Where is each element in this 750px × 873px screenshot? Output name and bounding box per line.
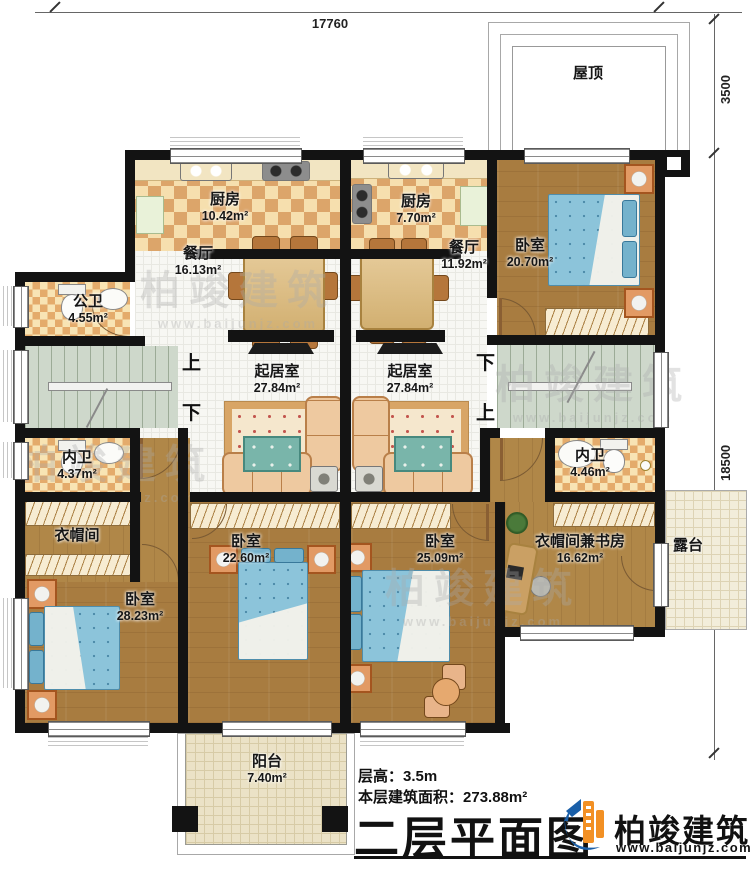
- nightstand: [624, 164, 654, 194]
- wall-tv: [228, 330, 334, 342]
- pillow: [622, 200, 637, 237]
- bed: [362, 570, 450, 662]
- stair-label-down: 下: [476, 348, 495, 375]
- nightstand: [27, 690, 57, 720]
- wall: [125, 150, 135, 282]
- window-sill: [3, 286, 13, 326]
- room-label-kitchen-left: 厨房10.42m²: [165, 192, 285, 223]
- window: [360, 721, 466, 737]
- balcony-door: [222, 721, 332, 737]
- window-sill: [3, 350, 13, 422]
- window: [13, 598, 29, 690]
- room-label-study: 衣帽间兼书房16.62m²: [500, 534, 660, 565]
- room-label-bedroom-s1: 卧室22.60m²: [194, 534, 298, 565]
- window-sill: [3, 442, 13, 478]
- room-label-living-left: 起居室27.84m²: [225, 364, 329, 395]
- window-sill: [3, 598, 13, 688]
- dimension-tick: [653, 1, 664, 12]
- room-label-cloakroom: 衣帽间: [26, 528, 128, 545]
- kitchen-stove: [352, 184, 372, 224]
- wall: [550, 492, 655, 502]
- bed-sheet: [363, 571, 449, 661]
- dimension-right-value: 18500: [718, 415, 733, 510]
- nightstand: [307, 545, 336, 574]
- wall-party: [340, 150, 351, 733]
- wall: [487, 150, 497, 298]
- floor-terrace: [665, 490, 747, 630]
- footer-rule: [354, 856, 746, 859]
- wall: [495, 502, 505, 632]
- tv: [248, 343, 314, 354]
- wall: [351, 492, 483, 502]
- window-sill: [48, 737, 148, 748]
- stair-handrail: [48, 382, 172, 391]
- window: [48, 721, 150, 737]
- wall: [190, 492, 340, 502]
- tv: [377, 343, 443, 354]
- coffee-table: [243, 436, 301, 472]
- door-leaf: [499, 298, 502, 335]
- room-label-public-bath: 公卫4.55m²: [42, 294, 134, 325]
- dining-table: [243, 250, 325, 334]
- wall: [545, 428, 655, 438]
- nightstand: [27, 579, 57, 609]
- dimension-tick: [49, 1, 60, 12]
- coffee-table: [394, 436, 452, 472]
- wardrobe: [25, 500, 132, 526]
- room-label-bedroom-ne: 卧室20.70m²: [488, 238, 572, 269]
- wardrobe: [351, 503, 451, 529]
- room-label-roof: 屋顶: [543, 66, 633, 83]
- wall: [130, 492, 140, 582]
- balcony-pillar: [322, 806, 348, 832]
- kitchen-sink: [180, 161, 232, 181]
- bed: [238, 562, 308, 660]
- floorplan-canvas: 17760 3500 18500 屋顶: [0, 0, 750, 873]
- door-leaf: [500, 438, 503, 480]
- window-sill: [360, 737, 464, 748]
- refrigerator: [460, 186, 488, 226]
- pillow: [29, 612, 44, 646]
- wall: [15, 272, 135, 282]
- stair-label-up: 上: [476, 398, 495, 425]
- window: [363, 148, 465, 164]
- window: [170, 148, 302, 164]
- window: [13, 286, 29, 328]
- logo-svg: [560, 795, 610, 853]
- stair-label-up: 上: [182, 348, 201, 375]
- room-label-inner-bath-left: 内卫4.37m²: [35, 450, 119, 481]
- wall: [480, 428, 500, 438]
- room-label-terrace: 露台: [648, 538, 728, 555]
- floor-drain: [640, 460, 651, 471]
- room-label-balcony: 阳台7.40m²: [212, 754, 322, 785]
- wall: [495, 627, 505, 733]
- window: [13, 442, 29, 480]
- pillow: [29, 650, 44, 684]
- window: [653, 352, 669, 428]
- room-label-bedroom-sw: 卧室28.23m²: [88, 592, 192, 623]
- wardrobe: [25, 554, 132, 576]
- balcony-pillar: [172, 806, 198, 832]
- room-label-inner-bath-right: 内卫4.46m²: [548, 448, 632, 479]
- brand-logo-icon: [560, 795, 610, 853]
- floor-height-text: 层高：3.5m: [358, 765, 437, 786]
- bed-sheet: [239, 563, 307, 659]
- kitchen-stove: [262, 161, 310, 181]
- dimension-top-value: 17760: [280, 16, 380, 31]
- window: [524, 148, 630, 164]
- side-table-lamp: [310, 466, 338, 492]
- room-label-bedroom-s2: 卧室25.09m²: [388, 534, 492, 565]
- nightstand: [624, 288, 654, 318]
- room-label-living-right: 起居室27.84m²: [358, 364, 462, 395]
- wall: [178, 428, 188, 502]
- wardrobe: [553, 503, 655, 527]
- room-label-dining-left: 餐厅16.13m²: [150, 246, 246, 277]
- round-table: [432, 678, 460, 706]
- stair-label-down: 下: [182, 398, 201, 425]
- stair-handrail: [508, 382, 632, 391]
- side-table-lamp: [355, 466, 383, 492]
- door-leaf: [140, 438, 143, 478]
- pillow: [622, 241, 637, 278]
- window: [13, 350, 29, 424]
- dimension-line-top: [35, 12, 742, 13]
- wall: [15, 336, 145, 346]
- refrigerator: [136, 196, 164, 234]
- brand-website: www.baijunjz.com: [616, 840, 750, 855]
- plant: [506, 512, 528, 534]
- wall: [15, 492, 141, 502]
- wall: [15, 428, 140, 438]
- wall: [480, 438, 490, 502]
- wall: [487, 335, 665, 345]
- room-label-kitchen-right: 厨房7.70m²: [372, 194, 460, 225]
- dimension-roof-value: 3500: [718, 55, 733, 125]
- roof-outline: [512, 46, 666, 154]
- wall-tv: [356, 330, 445, 342]
- computer-monitor: [506, 565, 524, 581]
- window: [520, 625, 634, 641]
- dimension-line-right: [714, 14, 715, 760]
